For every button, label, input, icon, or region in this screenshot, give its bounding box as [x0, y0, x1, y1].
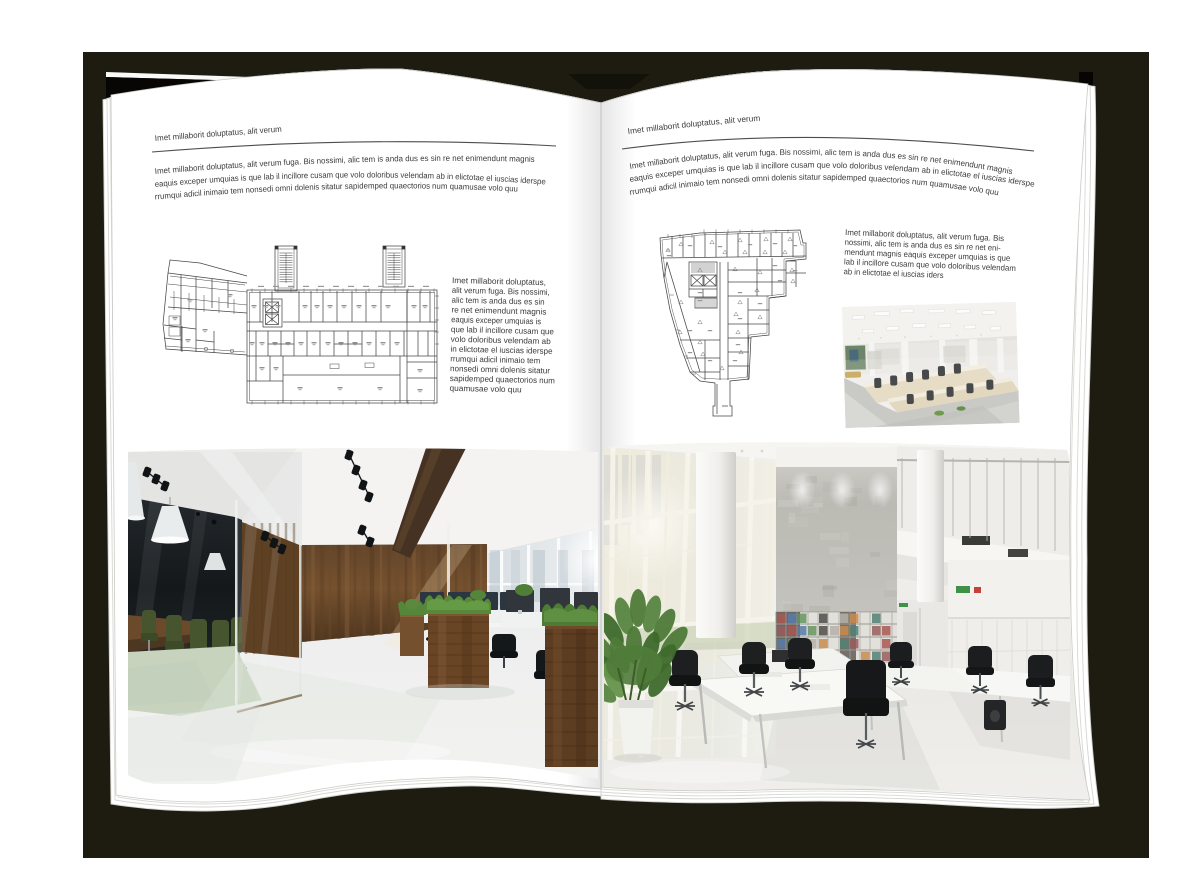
svg-text:quamusae volo quu: quamusae volo quu — [450, 384, 523, 395]
